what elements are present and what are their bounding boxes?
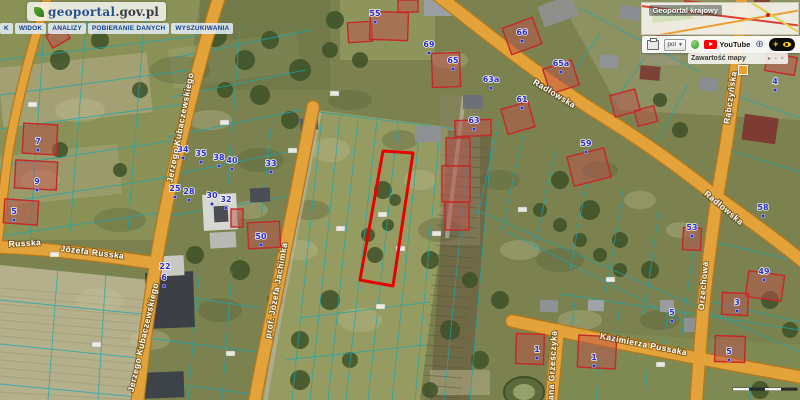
house-number-label: 35 xyxy=(195,149,207,158)
house-number-dot xyxy=(489,86,493,90)
house-number-dot xyxy=(181,156,185,160)
house-number-label: 69 xyxy=(423,40,435,49)
panel-title: Geoportal krajowy xyxy=(649,5,722,16)
main-menu-bar: K WIDOK ANALIZY POBIERANIE DANYCH WYSZUK… xyxy=(0,23,233,34)
house-number-label: 61 xyxy=(516,95,528,104)
house-number-dot xyxy=(173,195,177,199)
accessibility-contrast-control[interactable]: + xyxy=(769,38,795,51)
house-number-label: 5 xyxy=(726,347,732,356)
house-number-label: 33 xyxy=(265,159,276,168)
street-label: Russka xyxy=(8,237,41,249)
house-number-label: 40 xyxy=(226,156,238,165)
house-number-dot xyxy=(761,214,765,218)
house-number-label: 7 xyxy=(35,137,41,146)
house-number-label: 34 xyxy=(177,145,189,154)
house-number-dot xyxy=(373,20,377,24)
eye-icon[interactable] xyxy=(783,42,791,47)
house-number-dot xyxy=(230,167,234,171)
house-number-label: 32 xyxy=(220,195,231,204)
house-number-dot xyxy=(762,278,766,282)
house-number-label: 38 xyxy=(213,153,225,162)
minimap-location-dot xyxy=(766,13,770,17)
legend-layer-swatch xyxy=(738,65,748,75)
house-number-dot xyxy=(773,88,777,92)
geoportal-logo[interactable]: geoportal.gov.pl xyxy=(27,2,166,21)
house-number-dot xyxy=(269,170,273,174)
house-number-label: 30 xyxy=(206,191,218,200)
chevron-down-icon: ▼ xyxy=(678,42,683,48)
house-number-label: 63 xyxy=(468,116,479,125)
house-number-dot xyxy=(217,164,221,168)
youtube-label: YouTube xyxy=(719,40,750,49)
font-increase-button[interactable]: + xyxy=(773,40,778,49)
house-number-dot xyxy=(592,364,596,368)
house-number-dot xyxy=(727,358,731,362)
house-number-dot xyxy=(199,160,203,164)
globe-icon[interactable]: ⊕ xyxy=(755,40,763,50)
house-number-label: 5 xyxy=(11,207,17,216)
menu-item-widok[interactable]: WIDOK xyxy=(15,23,46,34)
logo-text-suffix: .gov.pl xyxy=(115,5,158,19)
house-number-dot xyxy=(451,67,455,71)
house-number-dot xyxy=(224,206,228,210)
house-number-label: 9 xyxy=(34,177,40,186)
house-number-label: 4 xyxy=(772,77,778,86)
house-number-label: 5 xyxy=(669,308,675,317)
house-number-dot xyxy=(520,106,524,110)
map-contents-title: Zawartość mapy xyxy=(691,55,746,62)
house-number-label: 55 xyxy=(369,9,381,18)
house-number-dot xyxy=(735,309,739,313)
house-number-label: 28 xyxy=(183,187,195,196)
house-number-label: 1 xyxy=(534,345,540,354)
status-icon[interactable] xyxy=(691,40,699,49)
house-number-dot xyxy=(559,70,563,74)
house-number-label: 65a xyxy=(553,59,570,68)
house-number-label: 3 xyxy=(734,298,740,307)
house-number-dot xyxy=(427,51,431,55)
menu-item-plik[interactable]: K xyxy=(0,23,13,34)
map-canvas[interactable]: Jerzego KubaczewskiegoJerzego Kubaczewsk… xyxy=(0,0,800,400)
house-number-dot xyxy=(472,127,476,131)
house-number-dot xyxy=(187,198,191,202)
language-select[interactable]: pol ▼ xyxy=(664,39,686,51)
print-icon[interactable] xyxy=(647,40,659,50)
house-number-label: 1 xyxy=(591,353,597,362)
house-number-dot xyxy=(690,234,694,238)
scale-bar xyxy=(732,387,798,391)
house-number-label: 25 xyxy=(169,184,181,193)
house-number-dot xyxy=(12,218,16,222)
house-number-label: 6 xyxy=(161,273,167,282)
house-number-dot xyxy=(259,243,263,247)
house-number-label: 59 xyxy=(580,139,592,148)
house-number-label: 63a xyxy=(483,75,500,84)
house-number-dot xyxy=(36,148,40,152)
language-value: pol xyxy=(667,41,676,48)
house-number-label: 65 xyxy=(447,56,459,65)
house-number-dot xyxy=(520,39,524,43)
youtube-play-icon xyxy=(704,40,717,49)
menu-item-analizy[interactable]: ANALIZY xyxy=(48,23,86,34)
house-number-dot xyxy=(210,202,214,206)
house-number-label: 58 xyxy=(757,203,769,212)
house-number-label: 53 xyxy=(686,223,697,232)
house-number-label: 66 xyxy=(516,28,528,37)
house-number-dot xyxy=(584,150,588,154)
youtube-link[interactable]: YouTube xyxy=(704,40,750,49)
house-number-dot xyxy=(162,284,166,288)
house-number-label: 22 xyxy=(159,262,170,271)
house-number-dot xyxy=(670,319,674,323)
house-number-label: 49 xyxy=(758,267,770,276)
map-contents-panel-header[interactable]: Zawartość mapy ▸ ▫ × xyxy=(688,53,788,64)
house-number-dot xyxy=(535,356,539,360)
map-contents-panel-icons[interactable]: ▸ ▫ × xyxy=(768,55,785,62)
house-number-label: 50 xyxy=(255,232,267,241)
menu-item-pobieranie-danych[interactable]: POBIERANIE DANYCH xyxy=(88,23,169,34)
house-number-dot xyxy=(35,188,39,192)
top-right-toolbar: pol ▼ YouTube ⊕ + xyxy=(642,36,800,53)
menu-item-wyszukiwania[interactable]: WYSZUKIWANIA xyxy=(171,23,233,34)
logo-leaf-icon xyxy=(34,7,44,17)
logo-text-main: geoportal xyxy=(48,5,115,19)
